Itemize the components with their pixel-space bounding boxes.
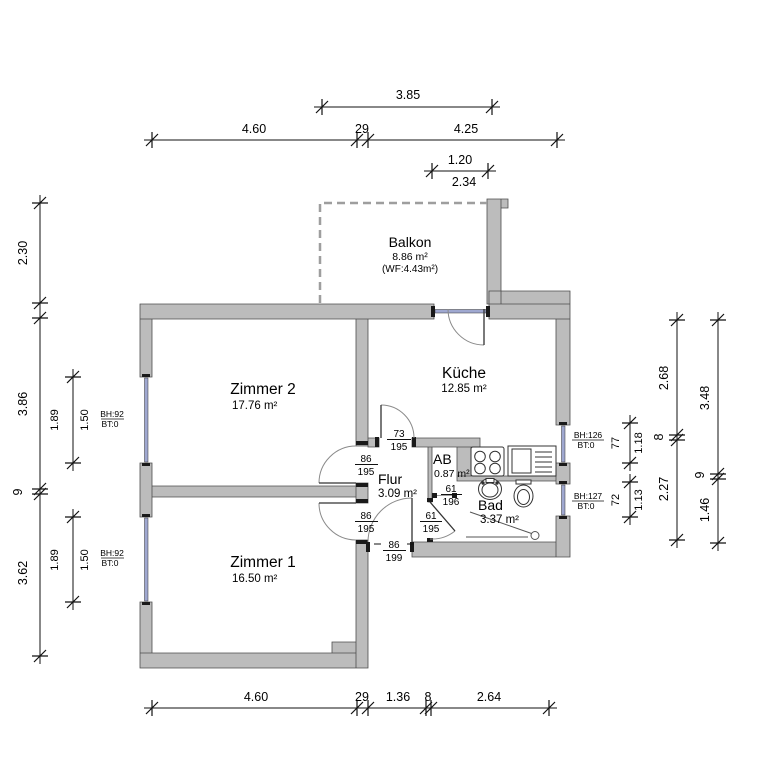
zimmer2-label: Zimmer 2 bbox=[230, 381, 295, 398]
door-height: 196 bbox=[443, 497, 460, 508]
zimmer1-door bbox=[319, 503, 356, 540]
door-width: 86 bbox=[388, 540, 400, 551]
window-bt: BT:0 bbox=[577, 501, 594, 511]
dim-chain-right-inner: 2.68 8 2.27 bbox=[652, 312, 685, 548]
zimmer1-door-size: 86 195 bbox=[355, 511, 378, 535]
dim-value: 2.30 bbox=[16, 241, 30, 265]
dim-value: 29 bbox=[355, 690, 369, 704]
zimmer2-window-annotation: 1.89 1.50 BH:92 BT:0 bbox=[49, 369, 124, 471]
zimmer2-window-glazing bbox=[145, 378, 149, 462]
flur-label: Flur bbox=[378, 471, 402, 487]
bad-area: 3.37 m² bbox=[480, 514, 519, 526]
door-height: 195 bbox=[423, 524, 440, 535]
window-dim-outer: 77 bbox=[610, 437, 622, 449]
zimmer2-door bbox=[319, 446, 356, 483]
door-width: 61 bbox=[425, 511, 437, 522]
window-dim-inner: 1.50 bbox=[79, 409, 91, 430]
kueche-label: Küche bbox=[442, 365, 486, 382]
door-height: 195 bbox=[391, 442, 408, 453]
kueche-window-glazing bbox=[562, 426, 566, 462]
window-sill-height: BH:92 bbox=[100, 548, 124, 558]
dim-value: 2.68 bbox=[657, 366, 671, 390]
walls bbox=[140, 199, 570, 668]
balkon-label: Balkon bbox=[389, 234, 432, 250]
window-dim-outer: 1.89 bbox=[49, 549, 61, 570]
dim-value: 9 bbox=[693, 471, 707, 478]
ab-label: AB bbox=[433, 451, 452, 467]
dim-value: 4.60 bbox=[244, 690, 268, 704]
dim-value: 3.48 bbox=[698, 386, 712, 410]
door-height: 199 bbox=[386, 553, 403, 564]
bad-label: Bad bbox=[478, 497, 503, 513]
window-sill-height: BH:126 bbox=[574, 430, 603, 440]
flur-area: 3.09 m² bbox=[378, 488, 417, 500]
door-width: 86 bbox=[360, 454, 372, 465]
window-bt: BT:0 bbox=[101, 419, 118, 429]
window-bt: BT:0 bbox=[101, 558, 118, 568]
bad-window-glazing bbox=[562, 485, 566, 515]
dim-chain-left: 3.86 9 3.62 bbox=[11, 310, 48, 664]
kueche-window-annotation: 77 1.18 BH:126 BT:0 bbox=[572, 415, 645, 471]
balkon-note: (WF:4.43m²) bbox=[382, 264, 438, 275]
dim-value: 9 bbox=[11, 488, 25, 495]
window-dim-outer: 1.89 bbox=[49, 409, 61, 430]
bad-window-annotation: 72 1.13 BH:127 BT:0 bbox=[572, 474, 645, 525]
window-sill-height: BH:92 bbox=[100, 409, 124, 419]
dim-value: 1.46 bbox=[698, 498, 712, 522]
zimmer1-window-glazing bbox=[145, 518, 149, 601]
dim-value: 3.62 bbox=[16, 561, 30, 585]
dim-chain-top-balcony: 3.85 bbox=[314, 88, 500, 115]
dim-value: 8 bbox=[652, 433, 666, 440]
balkon-area: 8.86 m² bbox=[392, 251, 428, 263]
door-arc bbox=[319, 446, 356, 483]
zimmer1-window-annotation: 1.89 1.50 BH:92 BT:0 bbox=[49, 509, 124, 610]
dim-value: 1.20 bbox=[448, 153, 472, 167]
door-arc bbox=[319, 503, 356, 540]
dim-chain-bottom: 4.60 29 1.36 8 2.64 bbox=[144, 690, 557, 716]
door-height: 195 bbox=[358, 524, 375, 535]
window-dim-outer: 72 bbox=[610, 494, 622, 506]
window-sill-height: BH:127 bbox=[574, 491, 603, 501]
toilet-icon bbox=[514, 480, 533, 507]
kueche-area: 12.85 m² bbox=[441, 383, 487, 395]
ab-door-size: 61 196 bbox=[441, 484, 462, 508]
dim-value: 29 bbox=[355, 122, 369, 136]
cooktop-icon bbox=[471, 447, 504, 476]
zimmer1-area: 16.50 m² bbox=[232, 573, 278, 585]
balcony-door bbox=[448, 309, 484, 345]
room-labels: Balkon 8.86 m² (WF:4.43m²) Zimmer 2 17.7… bbox=[230, 234, 519, 585]
dimension-chains: 3.85 4.60 29 4.25 1.20 2.34 2.30 3.86 bbox=[11, 88, 726, 716]
bad-door-size: 61 195 bbox=[420, 511, 442, 535]
door-arc bbox=[368, 498, 412, 542]
dim-value: 2.64 bbox=[477, 690, 501, 704]
window-dim-inner: 1.13 bbox=[633, 489, 645, 510]
dim-chain-left-balcony: 2.30 bbox=[16, 195, 48, 311]
dim-value: 8 bbox=[425, 690, 432, 704]
floor-plan-page: Balkon 8.86 m² (WF:4.43m²) Zimmer 2 17.7… bbox=[0, 0, 768, 768]
door-arc bbox=[448, 309, 484, 345]
sink-icon bbox=[508, 446, 556, 476]
door-height: 195 bbox=[358, 467, 375, 478]
balcony-door-glazing bbox=[435, 310, 486, 314]
ab-area: 0.87 m² bbox=[434, 468, 470, 480]
dim-chain-balcony-door: 1.20 2.34 bbox=[424, 153, 496, 189]
dim-value: 2.34 bbox=[452, 175, 476, 189]
zimmer2-door-size: 86 195 bbox=[355, 454, 378, 478]
window-dim-inner: 1.50 bbox=[79, 549, 91, 570]
dim-value: 4.60 bbox=[242, 122, 266, 136]
dim-value: 2.27 bbox=[657, 477, 671, 501]
dim-value: 3.86 bbox=[16, 392, 30, 416]
door-width: 61 bbox=[445, 484, 457, 495]
dim-value: 3.85 bbox=[396, 88, 420, 102]
dim-value: 1.36 bbox=[386, 690, 410, 704]
entrance-door bbox=[368, 498, 412, 542]
door-width: 86 bbox=[360, 511, 372, 522]
zimmer1-label: Zimmer 1 bbox=[230, 554, 295, 571]
door-width: 73 bbox=[393, 429, 405, 440]
entrance-door-size: 86 199 bbox=[374, 540, 414, 564]
dim-value: 4.25 bbox=[454, 122, 478, 136]
floor-plan-drawing: Balkon 8.86 m² (WF:4.43m²) Zimmer 2 17.7… bbox=[0, 0, 768, 768]
zimmer2-area: 17.76 m² bbox=[232, 400, 278, 412]
window-bt: BT:0 bbox=[577, 440, 594, 450]
kueche-door-size: 73 195 bbox=[387, 429, 411, 453]
window-dim-inner: 1.18 bbox=[633, 432, 645, 453]
dim-chain-top: 4.60 29 4.25 bbox=[144, 122, 565, 148]
dim-chain-right-outer: 3.48 9 1.46 bbox=[693, 312, 726, 551]
wall-segments bbox=[140, 199, 570, 668]
